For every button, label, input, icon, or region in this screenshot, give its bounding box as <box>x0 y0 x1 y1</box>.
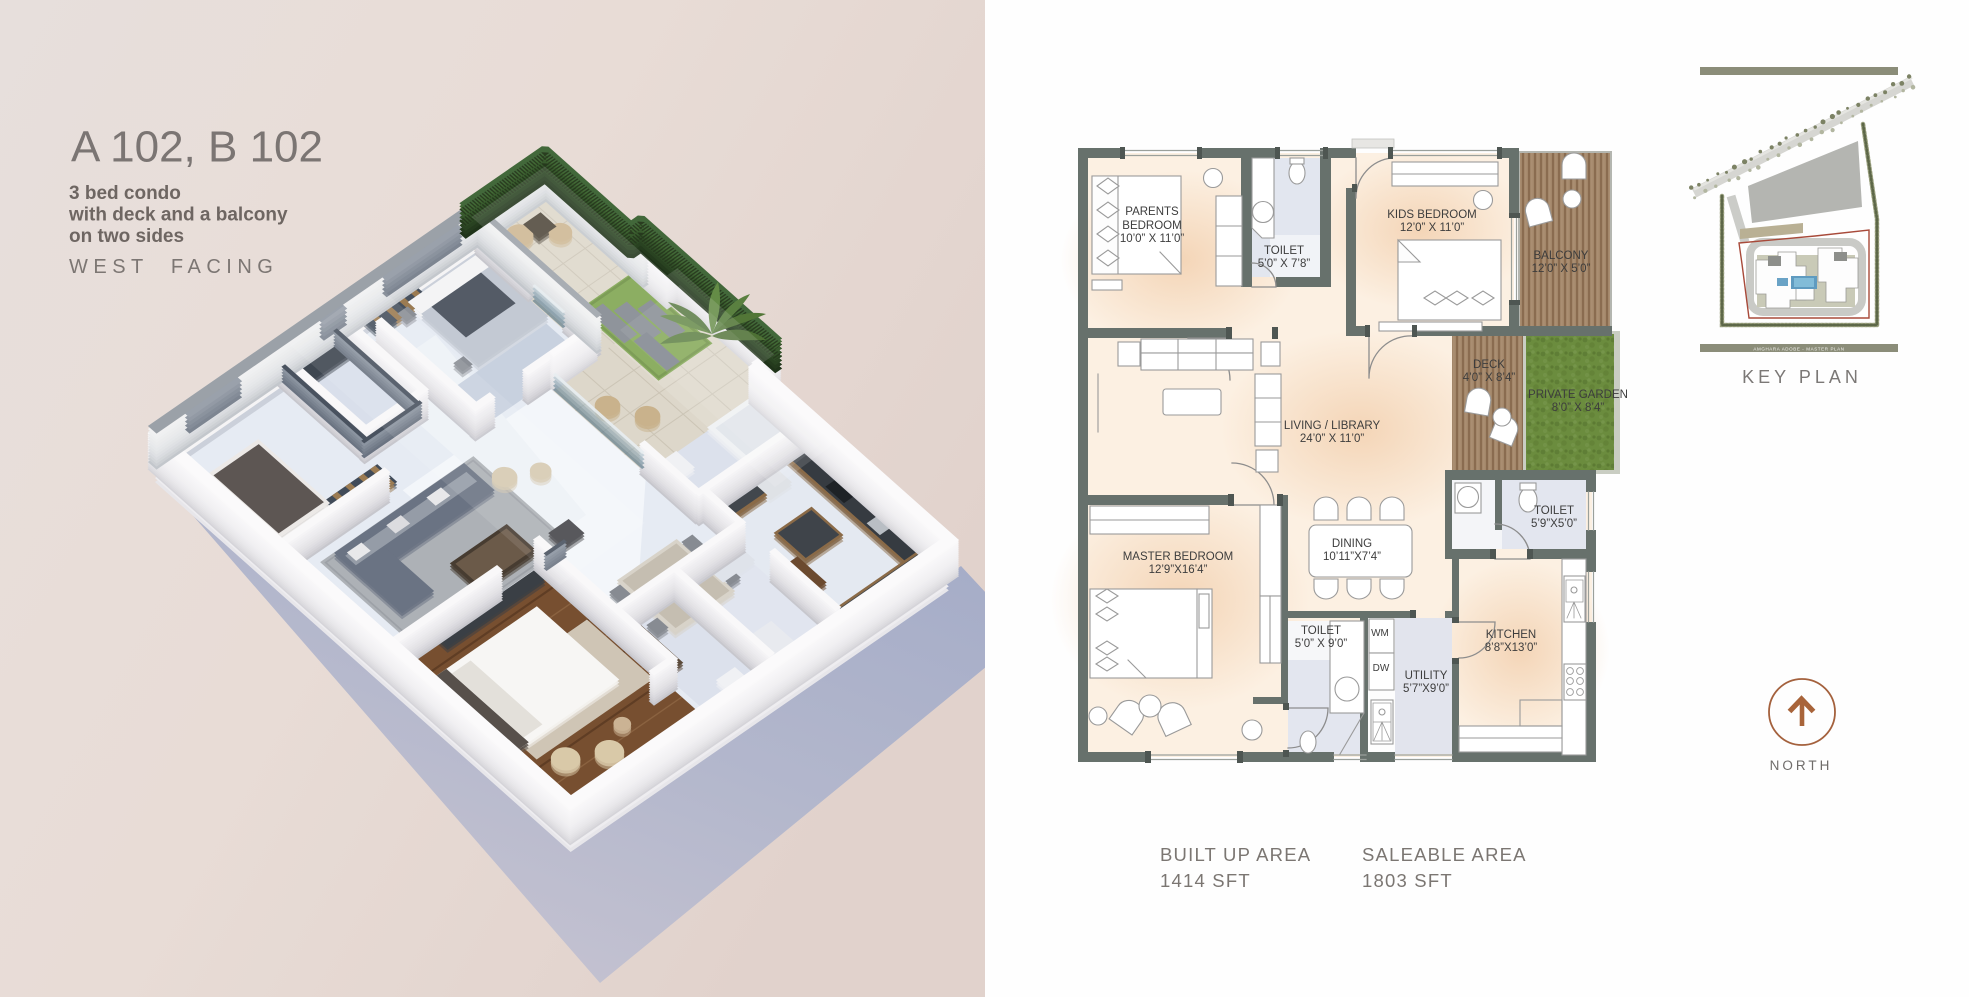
svg-text:WM: WM <box>1371 628 1389 639</box>
svg-text:PRIVATE GARDEN: PRIVATE GARDEN <box>1528 389 1628 401</box>
svg-text:KITCHEN: KITCHEN <box>1486 629 1536 641</box>
svg-text:TOILET: TOILET <box>1534 505 1574 517</box>
svg-text:PARENTS: PARENTS <box>1125 206 1179 218</box>
svg-text:WEST FACING: WEST FACING <box>69 256 278 278</box>
svg-text:8’0” X 8’4”: 8’0” X 8’4” <box>1552 402 1605 414</box>
svg-text:on two sides: on two sides <box>69 226 184 247</box>
svg-text:5’7”X9’0”: 5’7”X9’0” <box>1403 683 1449 695</box>
svg-text:12’0” X 5’0”: 12’0” X 5’0” <box>1532 263 1591 275</box>
svg-text:SALEABLE AREA: SALEABLE AREA <box>1362 844 1527 865</box>
svg-text:12’0” X 11’0”: 12’0” X 11’0” <box>1400 222 1465 234</box>
svg-text:BALCONY: BALCONY <box>1534 250 1589 262</box>
svg-text:1803 SFT: 1803 SFT <box>1362 870 1453 891</box>
svg-text:TOILET: TOILET <box>1264 245 1304 257</box>
svg-text:UTILITY: UTILITY <box>1405 670 1448 682</box>
svg-text:A 102, B 102: A 102, B 102 <box>71 123 323 172</box>
svg-text:10’0” X 11’0”: 10’0” X 11’0” <box>1120 233 1185 245</box>
svg-text:KEY PLAN: KEY PLAN <box>1742 367 1862 387</box>
svg-text:1414 SFT: 1414 SFT <box>1160 870 1251 891</box>
svg-text:5’0” X 7’8”: 5’0” X 7’8” <box>1258 258 1311 270</box>
svg-text:12’9”X16’4”: 12’9”X16’4” <box>1149 564 1208 576</box>
svg-text:LIVING / LIBRARY: LIVING / LIBRARY <box>1284 420 1381 432</box>
svg-text:BUILT UP AREA: BUILT UP AREA <box>1160 844 1311 865</box>
svg-text:DINING: DINING <box>1332 538 1372 550</box>
svg-text:BEDROOM: BEDROOM <box>1122 220 1181 232</box>
svg-text:5’0” X 9’0”: 5’0” X 9’0” <box>1295 638 1348 650</box>
svg-text:8’8”X13’0”: 8’8”X13’0” <box>1485 642 1538 654</box>
svg-text:24’0” X 11’0”: 24’0” X 11’0” <box>1300 433 1365 445</box>
svg-text:3 bed condo: 3 bed condo <box>69 183 181 204</box>
svg-text:4’0” X 8’4”: 4’0” X 8’4” <box>1463 372 1516 384</box>
svg-text:10’11”X7’4”: 10’11”X7’4” <box>1323 551 1381 563</box>
svg-text:AMGHARA ADOBE - MASTER PLAN: AMGHARA ADOBE - MASTER PLAN <box>1753 347 1844 352</box>
svg-text:MASTER BEDROOM: MASTER BEDROOM <box>1123 551 1234 563</box>
svg-text:TOILET: TOILET <box>1301 625 1341 637</box>
svg-text:with deck and a balcony: with deck and a balcony <box>68 205 288 226</box>
svg-text:5’9”X5’0”: 5’9”X5’0” <box>1531 518 1577 530</box>
svg-text:DECK: DECK <box>1473 359 1505 371</box>
svg-text:KIDS BEDROOM: KIDS BEDROOM <box>1387 209 1476 221</box>
svg-text:DW: DW <box>1373 663 1390 674</box>
svg-text:NORTH: NORTH <box>1770 758 1833 773</box>
